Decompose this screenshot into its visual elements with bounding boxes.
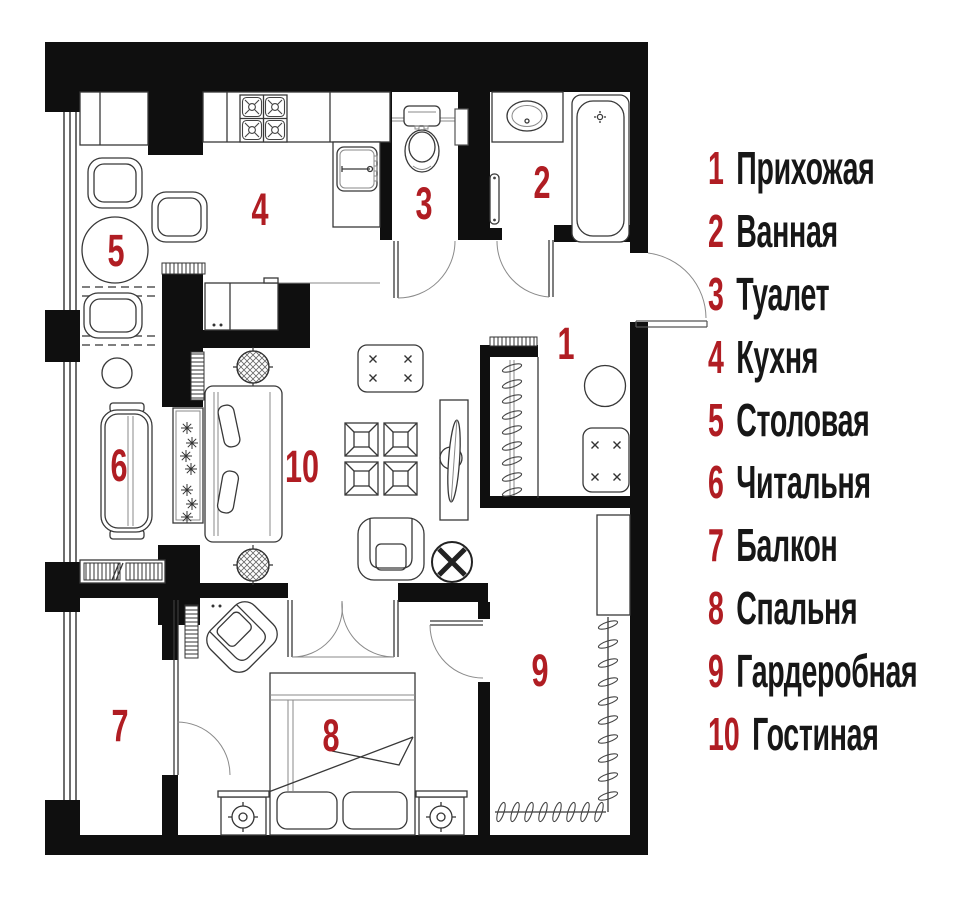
legend-number: 9 <box>708 645 724 697</box>
wardrobe-hangers-icon <box>495 617 618 822</box>
window-reading <box>64 362 76 562</box>
sofa-icon <box>205 386 282 542</box>
plant-box-icon <box>173 408 203 523</box>
hallway-ottoman-icon <box>583 428 629 492</box>
dining-chair-icon <box>88 158 142 208</box>
pouf-icon <box>384 423 417 456</box>
pouf-icon <box>345 462 378 495</box>
console-table-icon <box>440 400 468 520</box>
stove-icon <box>240 95 287 142</box>
bathroom-door <box>497 240 553 297</box>
room-number-balcony: 7 <box>111 701 128 751</box>
legend-number: 4 <box>708 331 724 383</box>
legend-label: Столовая <box>736 394 869 446</box>
bathroom-vanity-icon <box>492 92 563 142</box>
window-balcony <box>64 612 76 800</box>
entrance-door <box>636 253 707 327</box>
legend-item-reading: 6Читальня <box>708 451 960 514</box>
legend-label: Ванная <box>736 205 838 257</box>
bedroom-armchair-icon <box>201 596 283 678</box>
kitchen-counter-icon <box>80 92 390 145</box>
living-ottoman-icon <box>358 345 423 392</box>
round-side-table-icon <box>233 545 273 585</box>
legend-item-bathroom: 2Ванная <box>708 200 960 263</box>
bookshelf-icon <box>80 560 165 583</box>
bathtub-icon <box>572 95 629 242</box>
room-number-kitchen: 4 <box>251 185 268 235</box>
legend-number: 2 <box>708 205 724 257</box>
radiator-icon <box>162 263 205 274</box>
legend-item-kitchen: 4Кухня <box>708 325 960 388</box>
legend-item-bedroom: 8Спальня <box>708 577 960 640</box>
legend-label: Туалет <box>736 268 829 320</box>
coat-rack-icon <box>502 357 538 498</box>
toilet-door <box>394 241 455 298</box>
dining-chair-icon <box>84 293 142 338</box>
round-side-table-icon <box>233 347 273 387</box>
room-number-hallway: 1 <box>557 319 574 369</box>
nightstand-icon <box>218 791 269 835</box>
room-number-closet: 9 <box>531 646 548 696</box>
legend-item-balcony: 7Балкон <box>708 514 960 577</box>
nightstand-icon <box>416 791 467 835</box>
legend-label: Гардеробная <box>736 645 917 697</box>
legend-label: Спальня <box>736 582 857 634</box>
hallway-round-table-icon <box>585 366 626 407</box>
legend-number: 10 <box>708 708 740 760</box>
closet-door <box>430 621 483 678</box>
room-number-toilet: 3 <box>415 179 432 229</box>
pouf-icon <box>384 462 417 495</box>
legend-label: Балкон <box>736 519 837 571</box>
room-number-living: 10 <box>285 442 319 492</box>
reading-side-table-icon <box>102 358 132 388</box>
pouf-icon <box>345 423 378 456</box>
wardrobe-shelf-icon <box>597 515 630 615</box>
legend-number: 6 <box>708 456 724 508</box>
towel-rail-icon <box>490 174 499 224</box>
room-number-bedroom: 8 <box>322 711 339 761</box>
legend-item-dining: 5Столовая <box>708 388 960 451</box>
legend-number: 8 <box>708 582 724 634</box>
legend-label: Прихожая <box>736 142 874 194</box>
room-number-reading: 6 <box>110 441 127 491</box>
window-dining <box>64 112 76 310</box>
legend-label: Гостиная <box>752 708 878 760</box>
apartment-floor-plan-page: 1 2 3 4 5 6 7 8 9 10 1Прихожая 2Ванная 3… <box>0 0 960 900</box>
living-armchair-icon <box>358 518 424 580</box>
legend: 1Прихожая 2Ванная 3Туалет 4Кухня 5Столов… <box>708 137 960 765</box>
legend-label: Кухня <box>736 331 818 383</box>
legend-item-living: 10Гостиная <box>708 702 960 765</box>
radiator-icon <box>185 605 198 658</box>
legend-number: 1 <box>708 142 724 194</box>
legend-number: 7 <box>708 519 724 571</box>
legend-number: 3 <box>708 268 724 320</box>
radiator-icon <box>490 337 537 346</box>
room-number-dining: 5 <box>107 226 124 276</box>
legend-item-closet: 9Гардеробная <box>708 639 960 702</box>
kitchen-sink-icon <box>333 142 380 227</box>
lamp-table-icon <box>432 542 472 582</box>
toilet-icon <box>392 106 458 172</box>
room-number-bathroom: 2 <box>533 158 550 208</box>
radiator-icon <box>191 352 204 400</box>
legend-item-toilet: 3Туалет <box>708 263 960 326</box>
legend-item-hallway: 1Прихожая <box>708 137 960 200</box>
legend-number: 5 <box>708 394 724 446</box>
double-door <box>288 600 398 657</box>
dining-chair-icon <box>152 192 207 242</box>
legend-label: Читальня <box>736 456 870 508</box>
flush-panel-icon <box>455 109 468 145</box>
